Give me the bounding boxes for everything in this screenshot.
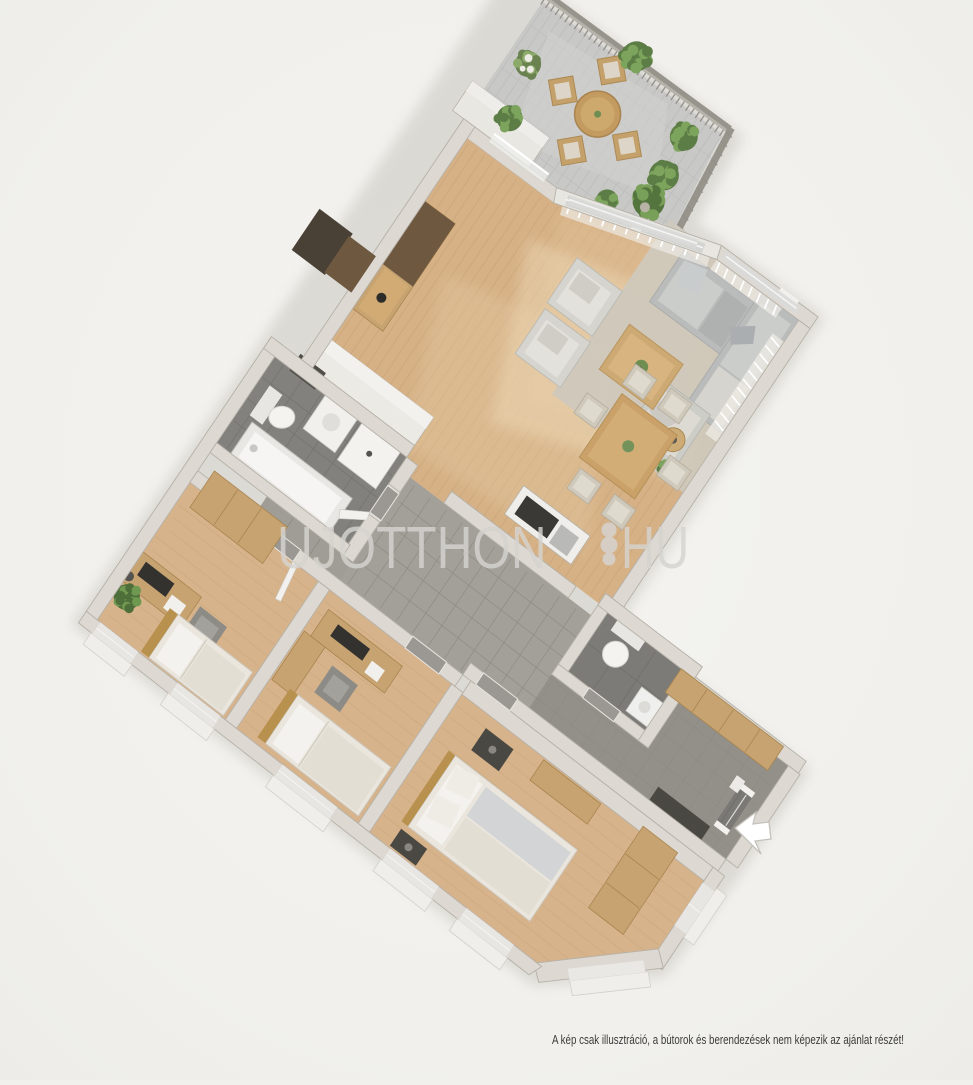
svg-text:UJOTTHON: UJOTTHON — [277, 515, 547, 581]
svg-text:A kép csak illusztráció, a bút: A kép csak illusztráció, a bútorok és be… — [552, 1033, 904, 1047]
svg-text:HU: HU — [621, 516, 689, 581]
